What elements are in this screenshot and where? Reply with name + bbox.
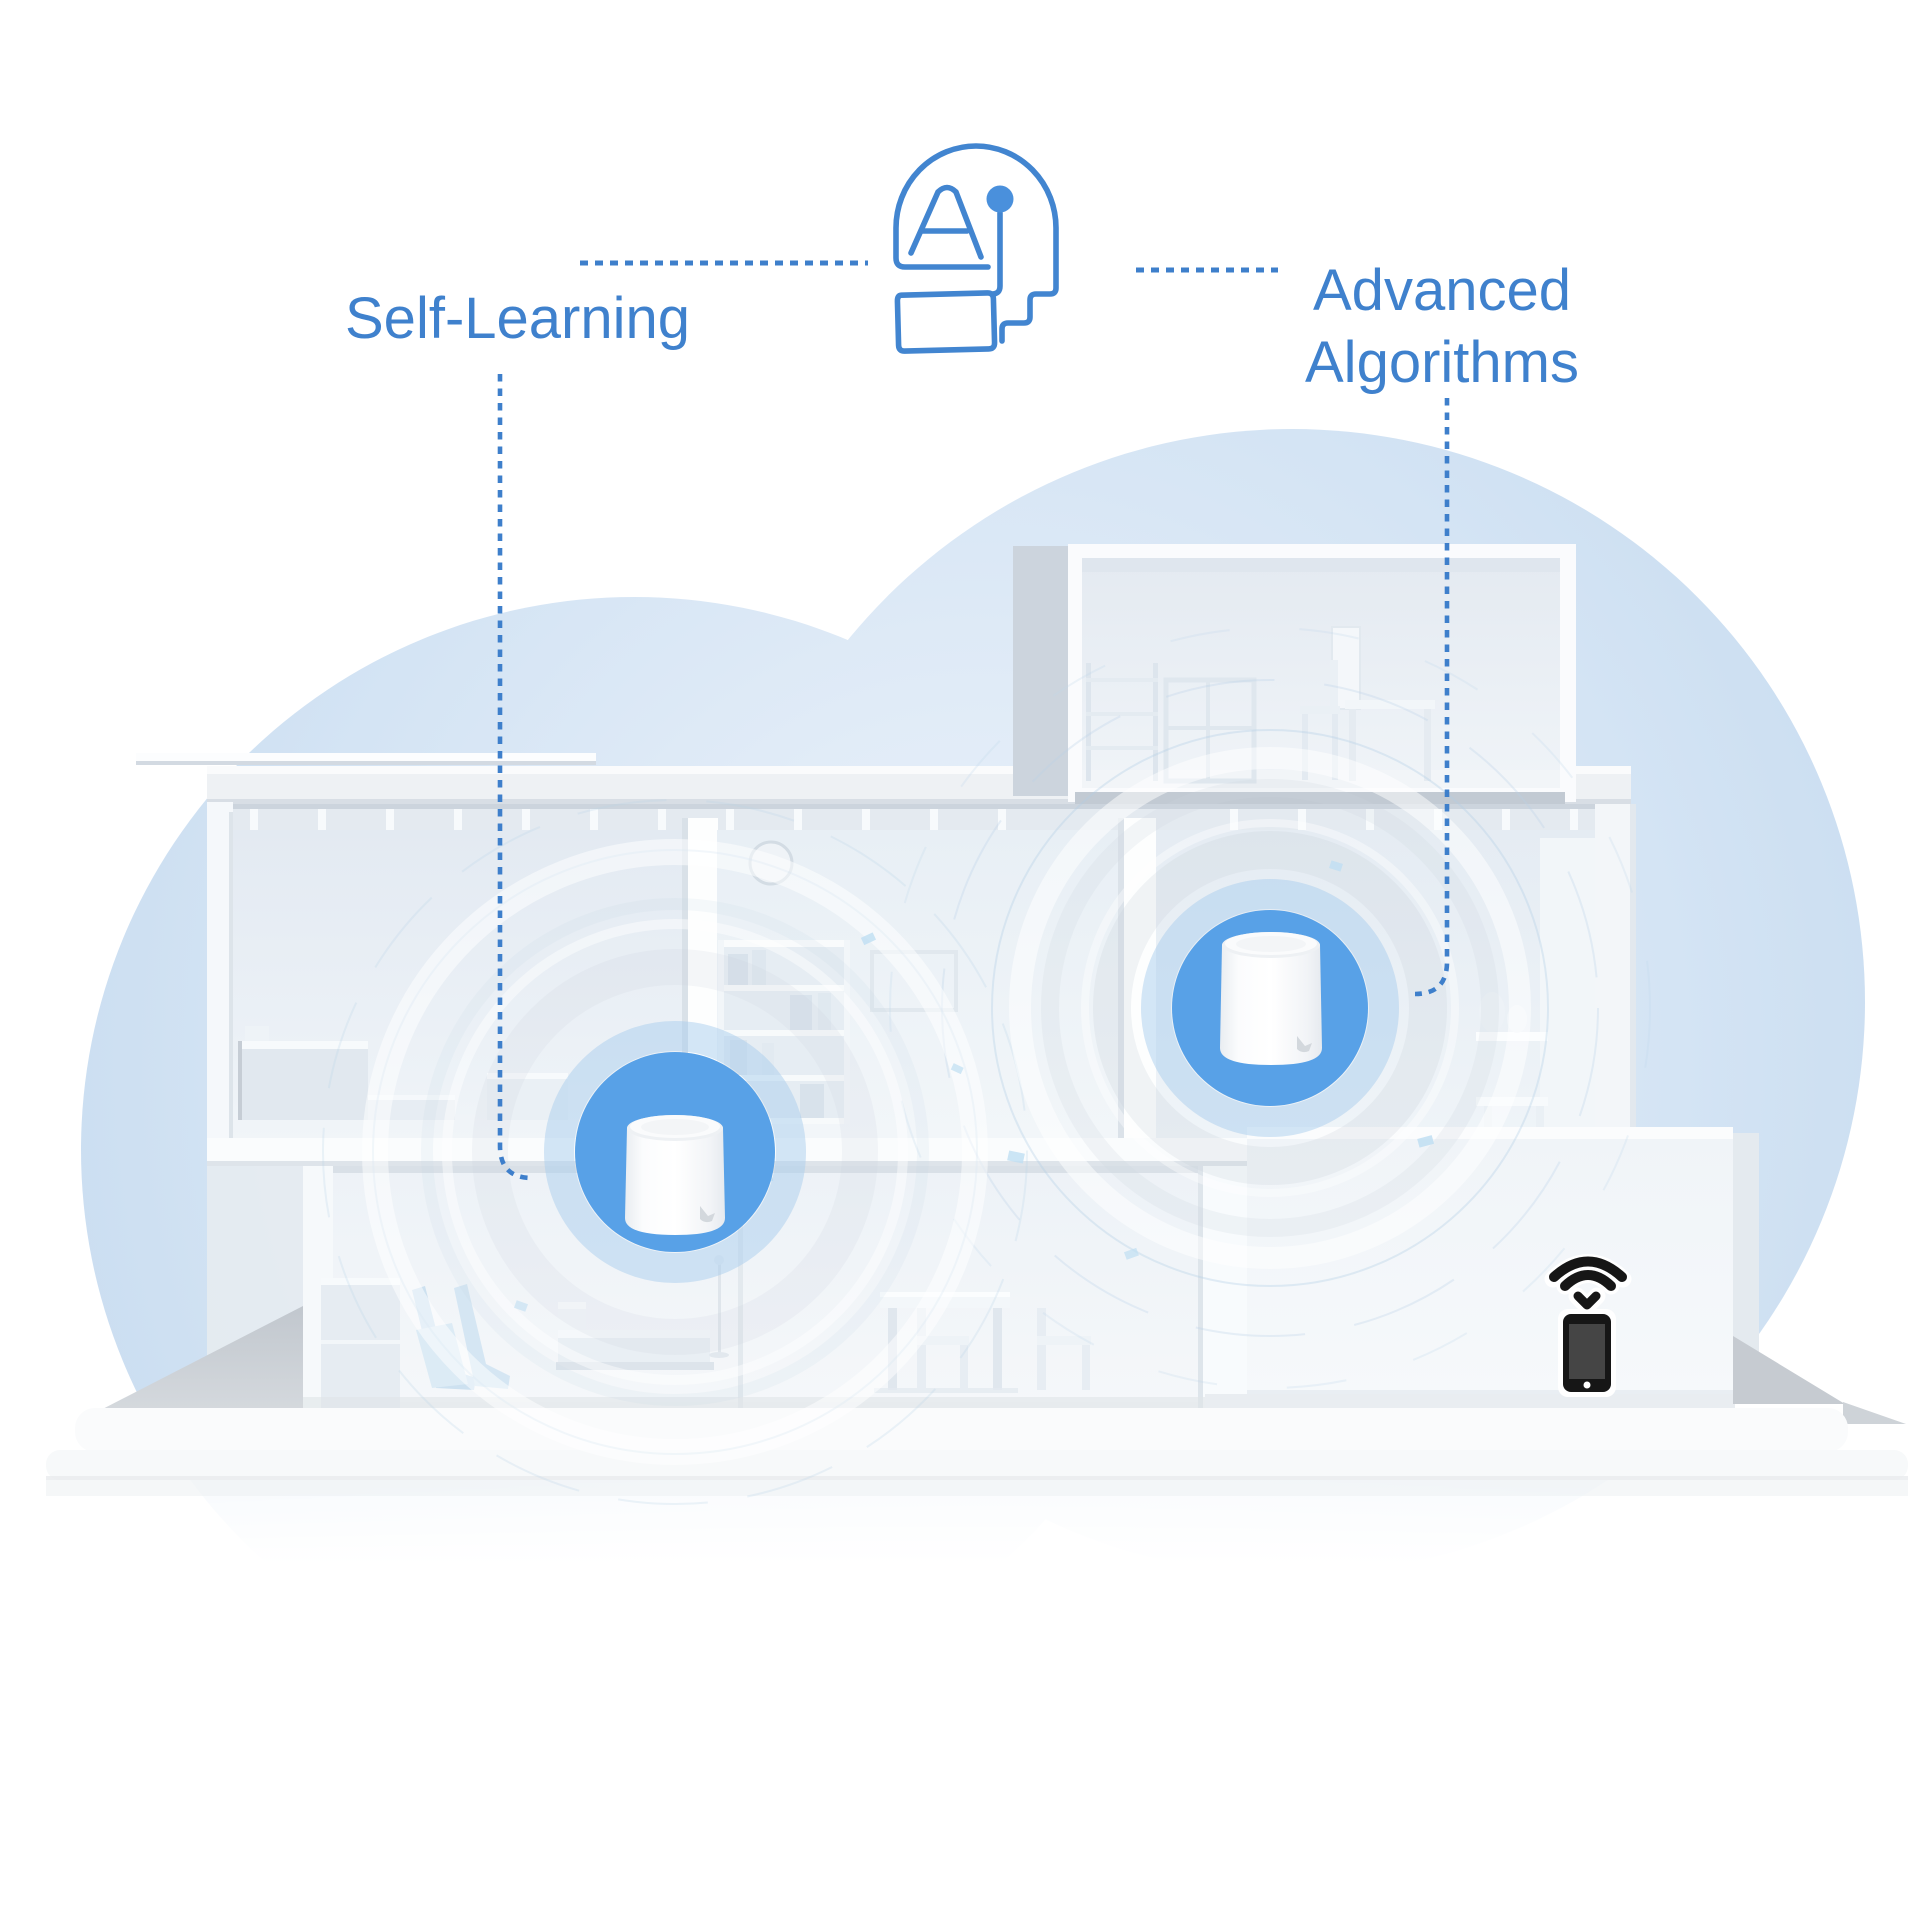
svg-text:Advanced: Advanced [1313, 258, 1571, 323]
svg-text:Self-Learning: Self-Learning [345, 286, 690, 351]
svg-text:Algorithms: Algorithms [1305, 330, 1579, 395]
